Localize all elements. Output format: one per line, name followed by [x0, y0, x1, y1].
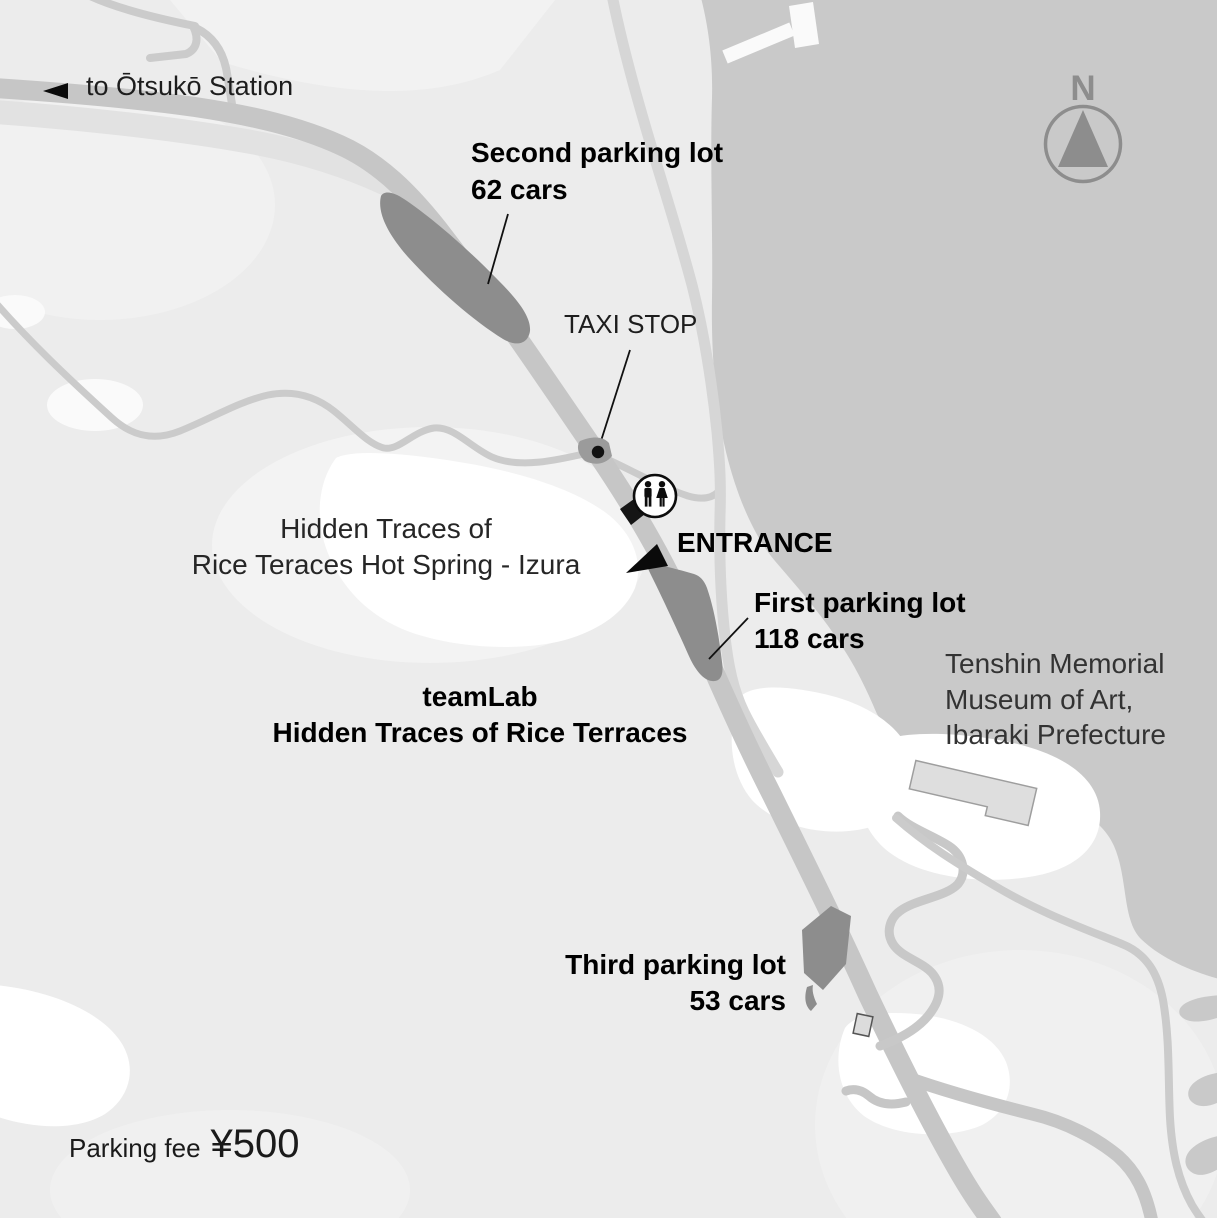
- restroom-icon: [634, 475, 676, 517]
- venue-label-line1: teamLab: [255, 679, 705, 715]
- small-building: [853, 1014, 873, 1037]
- hot-spring-label-line1: Hidden Traces of: [166, 511, 606, 547]
- second-parking-lot-capacity: 62 cars: [471, 171, 723, 208]
- hot-spring-label-line2: Rice Teraces Hot Spring - Izura: [166, 547, 606, 583]
- compass-letter: N: [1070, 69, 1095, 108]
- first-parking-lot-name: First parking lot: [754, 585, 966, 621]
- taxi-stop-dot: [592, 446, 604, 458]
- second-parking-lot-name: Second parking lot: [471, 134, 723, 171]
- third-parking-lot-capacity: 53 cars: [486, 983, 786, 1019]
- parking-fee-value: ¥500: [211, 1122, 300, 1166]
- parking-fee-label: Parking fee: [69, 1133, 201, 1163]
- museum-label-line2: Museum of Art,: [945, 682, 1166, 718]
- hot-spring-label: Hidden Traces of Rice Teraces Hot Spring…: [166, 511, 606, 583]
- venue-label: teamLab Hidden Traces of Rice Terraces: [255, 679, 705, 751]
- first-parking-lot-label: First parking lot 118 cars: [754, 585, 966, 657]
- third-parking-lot-label: Third parking lot 53 cars: [486, 947, 786, 1019]
- entrance-label: ENTRANCE: [677, 525, 833, 561]
- access-map: N to Ōtsukō Station Second parking lot 6…: [0, 0, 1217, 1218]
- third-parking-lot-name: Third parking lot: [486, 947, 786, 983]
- first-parking-lot-capacity: 118 cars: [754, 621, 966, 657]
- museum-label-line3: Ibaraki Prefecture: [945, 717, 1166, 753]
- station-direction-label: to Ōtsukō Station: [86, 68, 293, 104]
- museum-label: Tenshin Memorial Museum of Art, Ibaraki …: [945, 646, 1166, 753]
- museum-label-line1: Tenshin Memorial: [945, 646, 1166, 682]
- venue-label-line2: Hidden Traces of Rice Terraces: [255, 715, 705, 751]
- second-parking-lot-label: Second parking lot 62 cars: [471, 134, 723, 208]
- taxi-stop-label: TAXI STOP: [564, 306, 697, 342]
- parking-fee: Parking fee¥500: [69, 1122, 300, 1167]
